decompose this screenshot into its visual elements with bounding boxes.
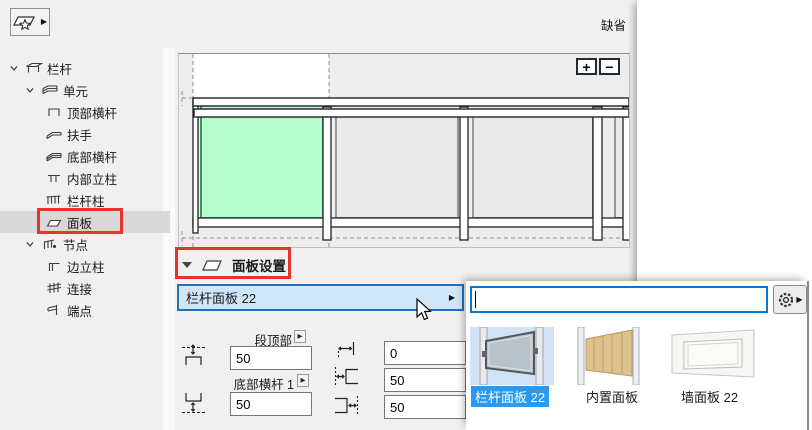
tree-item-bottom-rail[interactable]: 底部横杆 xyxy=(0,145,170,167)
edge-post-icon xyxy=(45,258,63,274)
tree-item-railing[interactable]: 栏杆 xyxy=(0,57,170,79)
bottom-offset-icon xyxy=(182,391,206,415)
thumbnail-label: 栏杆面板 22 xyxy=(471,386,549,407)
thumbnail-label: 内置面板 xyxy=(582,386,642,407)
tree-item-top-rail[interactable]: 顶部横杆 xyxy=(0,101,170,123)
tree-item-edge-post[interactable]: 边立柱 xyxy=(0,255,170,277)
bottom-rail-flyout-button[interactable]: ▶ xyxy=(297,374,309,387)
collapse-arrow-icon[interactable] xyxy=(182,262,192,268)
tree-item-connection[interactable]: 连接 xyxy=(0,277,170,299)
tree-item-segment[interactable]: 单元 xyxy=(0,79,170,101)
end-inset-icon xyxy=(333,395,360,416)
tree-item-inner-post[interactable]: 内部立柱 xyxy=(0,167,170,189)
handrail-icon xyxy=(45,126,63,142)
text-caret xyxy=(475,291,476,308)
flyout-arrow-icon: ▶ xyxy=(41,18,47,26)
panel-offset-input-2[interactable] xyxy=(384,368,466,392)
connection-icon xyxy=(45,280,63,296)
chevron-down-icon[interactable] xyxy=(23,237,37,251)
thumbnail-label: 墙面板 22 xyxy=(677,386,742,407)
flyout-arrow-icon: ▶ xyxy=(449,293,455,302)
node-icon xyxy=(41,236,59,252)
chevron-down-icon[interactable] xyxy=(23,83,37,97)
endpoint-icon xyxy=(45,302,63,318)
panel-offset-input-3[interactable] xyxy=(384,395,466,419)
horizontal-offset-icon xyxy=(336,341,358,358)
settings-gear-button[interactable]: ▶ xyxy=(773,285,807,314)
top-rail-icon xyxy=(45,104,63,120)
flyout-arrow-icon: ▶ xyxy=(796,295,802,304)
default-label: 缺省 xyxy=(601,15,626,34)
railing-panel-image xyxy=(470,327,554,385)
inner-post-icon xyxy=(45,170,63,186)
tree-item-node[interactable]: 节点 xyxy=(0,233,170,255)
start-inset-icon xyxy=(333,366,360,387)
chevron-down-icon[interactable] xyxy=(7,61,21,75)
bottom-rail-icon xyxy=(45,148,63,164)
panel-star-icon xyxy=(13,12,40,33)
inset-panel-image xyxy=(576,327,642,385)
tree-item-baluster[interactable]: 栏杆柱 xyxy=(0,189,170,211)
segment-top-flyout-button[interactable]: ▶ xyxy=(294,330,306,343)
panel-type-dropdown-value: 栏杆面板 22 xyxy=(186,288,256,307)
thumbnail-railing-panel[interactable] xyxy=(470,327,554,385)
gear-icon xyxy=(777,291,795,309)
wall-panel-image xyxy=(666,327,762,385)
tree-item-endpoint[interactable]: 端点 xyxy=(0,299,170,321)
thumbnail-wall-panel[interactable] xyxy=(666,327,762,385)
bottom-rail-offset-input[interactable] xyxy=(230,392,312,416)
segment-icon xyxy=(41,82,59,98)
railing-elevation-drawing xyxy=(179,54,629,247)
segment-top-input[interactable] xyxy=(230,346,312,370)
zoom-in-button[interactable]: + xyxy=(576,58,597,75)
railing-preview xyxy=(178,53,630,248)
bottom-rail-label: 底部横杆 1 xyxy=(222,374,294,393)
panel-settings-title: 面板设置 xyxy=(232,255,286,275)
search-input[interactable] xyxy=(470,286,768,313)
panel-settings-header[interactable]: 面板设置 xyxy=(182,255,286,275)
panel-offset-input-1[interactable] xyxy=(384,341,466,365)
top-offset-icon xyxy=(182,344,206,368)
panel-icon xyxy=(201,258,223,272)
favorites-flyout-button[interactable]: ▶ xyxy=(10,8,50,36)
zoom-out-button[interactable]: − xyxy=(599,58,620,75)
tree-item-panel[interactable]: 面板 xyxy=(0,211,170,233)
baluster-icon xyxy=(45,192,63,208)
thumbnail-inset-panel[interactable] xyxy=(576,327,642,385)
panel-type-dropdown[interactable]: 栏杆面板 22 ▶ xyxy=(177,284,464,311)
panel-chooser-popup: ▶ 栏杆面板 22 内置面板 墙面板 22 xyxy=(466,281,809,430)
tree-item-handrail[interactable]: 扶手 xyxy=(0,123,170,145)
railing-icon xyxy=(25,60,43,76)
panel-icon xyxy=(45,214,63,230)
